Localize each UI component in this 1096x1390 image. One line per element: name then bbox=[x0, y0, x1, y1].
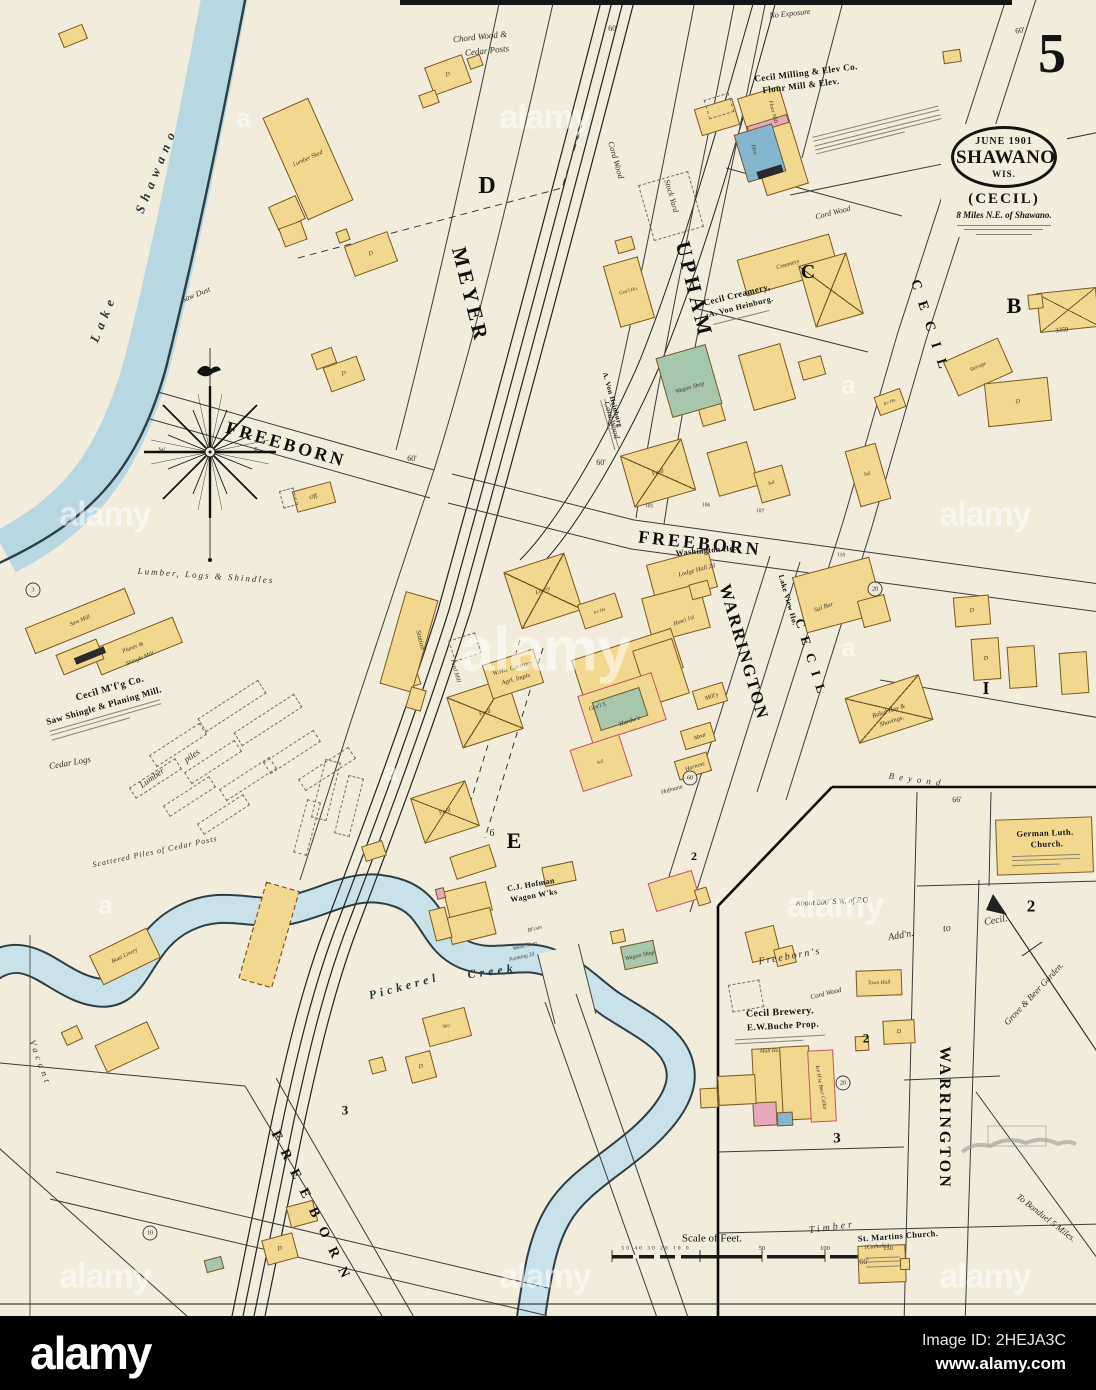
sheet-bottom-edge bbox=[0, 1303, 1096, 1305]
map-label: Chord Wood & bbox=[453, 30, 508, 45]
map-label: E.W.Buche Prop. bbox=[747, 1020, 819, 1033]
badge-city: SHAWANO bbox=[956, 147, 1052, 169]
map-label: 20 bbox=[836, 1076, 851, 1091]
map-label: No Exposure bbox=[769, 8, 811, 20]
map-label: Wagon Shop bbox=[625, 950, 656, 962]
map-label: Ice H'se Beer Cellar bbox=[813, 1065, 826, 1110]
map-label: 3 bbox=[342, 1104, 349, 1117]
fine-print-lines bbox=[941, 220, 1067, 235]
map-label: Lumber bbox=[138, 766, 166, 789]
image-id-label: Image ID: 2HEJA3C bbox=[922, 1332, 1066, 1350]
map-label: Freeborn's bbox=[758, 947, 822, 968]
map-label: UPHAM bbox=[672, 239, 716, 340]
map-label: Agrl. Impls bbox=[501, 673, 531, 687]
map-label: Station bbox=[414, 630, 426, 651]
map-label: Meat bbox=[693, 732, 707, 742]
sanborn-map-sheet: Lumber ShedDDOff.DCreameryGen'l Ho.FeedS… bbox=[0, 0, 1096, 1390]
map-label: Creek bbox=[467, 962, 518, 981]
map-label: Cord Wood bbox=[607, 140, 626, 179]
title-badge: JUNE 1901 SHAWANO WIS. (CECIL) 8 Miles N… bbox=[941, 124, 1067, 237]
map-label: Lake bbox=[87, 292, 118, 344]
map-label: About 800' S.W. of P.O. bbox=[796, 896, 871, 908]
map-label: Add'n. bbox=[887, 929, 914, 943]
map-label: Church. bbox=[1031, 839, 1064, 849]
map-label: 66' bbox=[952, 796, 962, 804]
map-label: Hofmann bbox=[660, 784, 683, 796]
alamy-info: Image ID: 2HEJA3C www.alamy.com bbox=[922, 1332, 1066, 1374]
badge-state: WIS. bbox=[956, 169, 1052, 179]
map-label: Hotel 1st bbox=[673, 614, 696, 627]
map-labels-layer: MEYERUPHAMFREEBORNFREEBORNWARRINGTONWARR… bbox=[0, 0, 1096, 1316]
map-label: WARRINGTON bbox=[716, 582, 771, 722]
map-label: 50 40 30 20 10 0 bbox=[621, 1246, 690, 1252]
map-label: Painting 2d bbox=[509, 952, 535, 964]
map-label: FREEBORN bbox=[268, 1129, 357, 1291]
map-label: Timber bbox=[808, 1220, 855, 1236]
map-label: FREEBORN bbox=[224, 418, 348, 469]
map-label: Malt Ho. bbox=[760, 1049, 780, 1056]
map-label: Vacant bbox=[27, 1039, 52, 1088]
map-label: 6 bbox=[490, 829, 495, 839]
map-label: E bbox=[507, 830, 522, 852]
map-label: Lake View Ho. bbox=[777, 574, 799, 627]
map-label: Scattered Piles of Cedar Posts bbox=[92, 835, 218, 869]
badge-date: JUNE 1901 bbox=[956, 136, 1052, 147]
map-label: C bbox=[801, 262, 815, 282]
map-label: Grove & Beer Garden. bbox=[1003, 961, 1066, 1027]
map-label: 107 bbox=[756, 509, 765, 515]
map-label: CECIL bbox=[907, 278, 953, 382]
map-label: Elev. bbox=[749, 144, 757, 156]
sheet-edge-strip bbox=[400, 0, 1012, 5]
map-label: German Luth. bbox=[1016, 828, 1073, 838]
site-url: www.alamy.com bbox=[922, 1354, 1066, 1374]
map-label: D bbox=[478, 174, 495, 198]
map-label: Sal Bar bbox=[814, 602, 835, 615]
map-label: 100 bbox=[820, 1246, 830, 1253]
map-label: Lumber, Logs & Shindles bbox=[137, 567, 274, 586]
map-label: St. Martins Church. bbox=[857, 1229, 938, 1243]
map-label: 2 bbox=[691, 850, 697, 862]
badge-oval: JUNE 1901 SHAWANO WIS. bbox=[951, 126, 1057, 188]
map-label: 3 bbox=[833, 1132, 841, 1147]
map-label: 3 bbox=[26, 583, 41, 598]
map-label: Scale of Feet. bbox=[682, 1234, 742, 1245]
map-label: Shawano bbox=[133, 125, 179, 215]
map-label: Flour Mill bbox=[767, 100, 778, 124]
map-label: Planer & bbox=[121, 641, 144, 655]
map-label: 66' bbox=[859, 1258, 869, 1266]
map-label: E bbox=[254, 448, 258, 455]
map-label: 10 bbox=[143, 1226, 158, 1241]
map-label: WARRINGTON bbox=[936, 1046, 952, 1190]
map-label: to bbox=[942, 923, 951, 934]
map-label: 20 bbox=[868, 582, 883, 597]
map-label: To Bonduel 5 Miles. bbox=[1015, 1192, 1077, 1244]
map-label: 106 bbox=[702, 503, 711, 509]
map-label: Bl'csm bbox=[527, 926, 543, 935]
map-label: 60' bbox=[407, 455, 416, 463]
alamy-logo: alamy bbox=[30, 1326, 150, 1380]
map-label: 2 bbox=[1027, 898, 1036, 915]
map-label: Wagon Shop bbox=[675, 381, 705, 395]
map-label: B bbox=[1007, 295, 1022, 317]
map-label: Shingle Mill bbox=[125, 651, 155, 668]
map-label: W bbox=[159, 448, 166, 455]
map-label: Cecil Brewery. bbox=[746, 1006, 815, 1020]
map-label: Hardw'e bbox=[618, 715, 641, 728]
map-label: Feed Mill bbox=[449, 659, 461, 683]
map-label: Cord Wood bbox=[810, 987, 842, 1001]
map-label: 60' bbox=[1015, 26, 1026, 36]
map-label: Cedar Posts bbox=[465, 44, 510, 58]
alamy-bar: alamy Image ID: 2HEJA3C www.alamy.com bbox=[0, 1316, 1096, 1390]
map-label: MEYER bbox=[448, 245, 492, 345]
map-label: piles bbox=[182, 747, 201, 764]
map-label: CECIL bbox=[793, 617, 831, 703]
map-label: Gen'l S. bbox=[588, 701, 608, 713]
map-label: Mill'y bbox=[704, 692, 719, 702]
map-label: 60 bbox=[683, 771, 698, 786]
badge-distance: 8 Miles N.E. of Shawano. bbox=[941, 210, 1067, 220]
map-label: Lodge Hall 2d bbox=[678, 563, 716, 579]
map-label: 105 bbox=[645, 504, 654, 510]
map-label: 60' bbox=[596, 459, 605, 467]
map-label: Saw Dust bbox=[180, 286, 211, 305]
map-label: 150 bbox=[883, 1246, 893, 1253]
map-label: Cedar Logs bbox=[48, 755, 91, 771]
map-label: 60' bbox=[608, 25, 617, 33]
page-number: 5 bbox=[1038, 22, 1066, 86]
map-label: Cecil. bbox=[984, 914, 1009, 928]
map-label: I bbox=[982, 679, 989, 697]
map-label: 118 bbox=[837, 553, 845, 559]
map-label: Beyond bbox=[888, 772, 946, 789]
map-label: 2 bbox=[863, 1032, 870, 1045]
badge-subtitle: (CECIL) bbox=[941, 191, 1067, 208]
map-label: Pickerel bbox=[367, 971, 440, 1001]
map-label: 3359 bbox=[1055, 327, 1069, 335]
map-label: Cord Wood bbox=[815, 205, 852, 221]
map-label: Stock Yard bbox=[662, 179, 679, 214]
map-label: 50 bbox=[759, 1246, 766, 1253]
